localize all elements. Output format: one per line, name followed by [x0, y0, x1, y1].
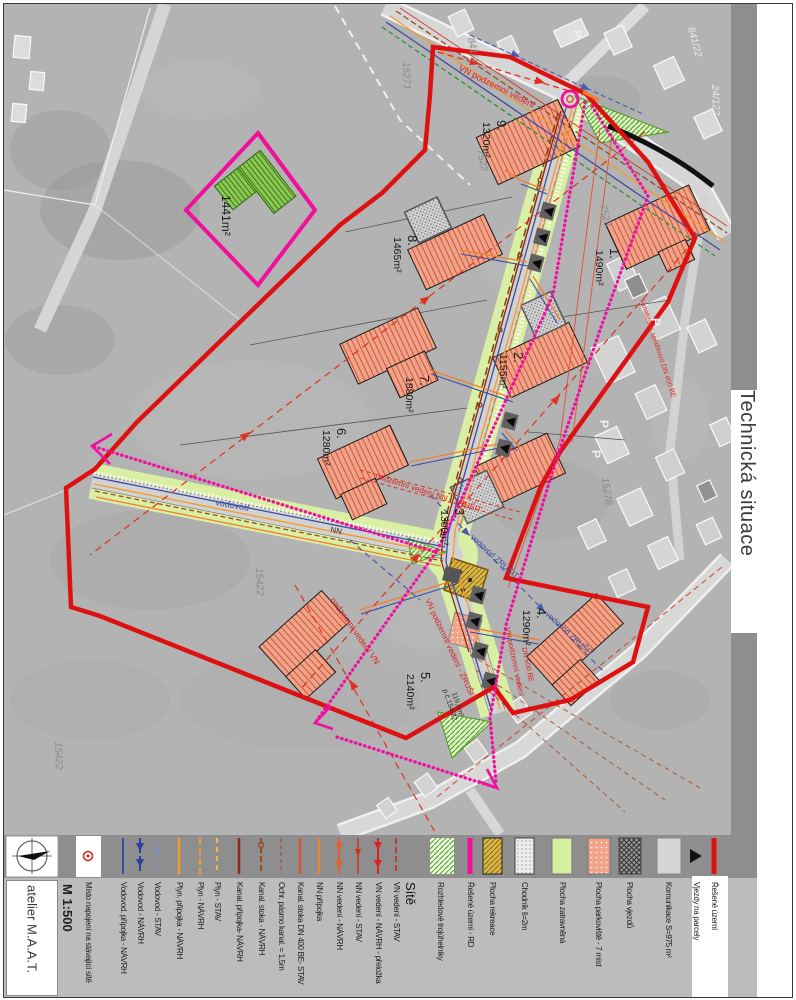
legend-label: Kanal. stoka - NÁVRH [254, 882, 268, 955]
legend-swatches [430, 838, 714, 874]
legend-symbols [4, 835, 757, 878]
parcel-1-area: 1490m² [593, 250, 605, 286]
map-canvas: 1. 1490m² 2. 1155m² 3. 1300m² 4. 1290m² … [4, 4, 731, 835]
legend-label: Ochr. pásmo kanal. = 1,5m [274, 882, 288, 970]
scale-label: M 1:500 [60, 884, 75, 932]
legend-label: VN vedení - NÁVRH - přeložka [371, 882, 385, 983]
legend-label: Plocha parkoviště - 7 míst [591, 882, 605, 966]
legend-label: Kanal. stoka DN 400 BE- STAV [293, 882, 307, 984]
parcel-5-area: 2140m² [404, 674, 416, 710]
legend-label: NN přípojka [312, 882, 326, 921]
parcel-4-area: 1290m² [520, 610, 532, 646]
cadastral-15422-b: 15422 [52, 742, 64, 771]
studio-box: atelier M.A.A.T. [6, 880, 58, 996]
connection-point-symbol [76, 836, 101, 877]
legend-label: Komunikace S=975 m² [661, 882, 675, 957]
swatch-sight-triangles [430, 838, 454, 874]
legend-label: Vodovod - NÁVRH [133, 882, 147, 944]
legend-label-misto: Místo napojení na stávající sítě [81, 882, 95, 983]
swatch-zatravnena [552, 838, 572, 874]
legend-label: Vodovod. přípojka - NÁVRH [116, 882, 130, 974]
legend-label: Rozhledové trojúhelníky [433, 882, 447, 960]
parcel-6-area: 1280m² [320, 430, 332, 466]
cadastral-15422: 15422 [253, 568, 265, 597]
parcel-2-num: 2. [511, 352, 526, 363]
parcel-3-num: 3. [452, 508, 467, 519]
cadastral-7523: 7523 [597, 203, 612, 227]
cadastral-841-22: 841/22 [685, 26, 704, 59]
swatch-komunikace [657, 838, 681, 874]
parcel-7-area: 1880m² [403, 377, 415, 413]
studio-name: atelier M.A.A.T. [25, 885, 40, 995]
cadastral-24-122: 24/122 [709, 84, 721, 116]
cadastral-15271: 15271 [400, 62, 412, 90]
p-marking-3: P [597, 420, 611, 428]
right-gray-strip-top [731, 4, 757, 390]
legend-label: Plocha rekreace [485, 882, 499, 935]
swatch-vjezdy-na-parcely-icon [690, 849, 702, 863]
page-title: Technická situace [735, 390, 758, 633]
legend-label: NN vedení - STAV [351, 882, 365, 942]
parcel-1441-area: 1441m² [219, 195, 233, 236]
parcel-6-num: 6. [334, 428, 349, 439]
legend-label: Řešené území - RD [463, 882, 477, 947]
p-marking-4: P [589, 450, 603, 458]
legend-label: Plyn - NÁVRH [193, 882, 207, 929]
swatch-vjezdy [619, 838, 641, 874]
parcel-3-area: 1300m² [438, 510, 450, 546]
legend-label: Plocha vjezdů [622, 882, 636, 928]
right-gray-strip-bottom [731, 633, 757, 835]
swatch-chodnik [515, 838, 534, 874]
north-compass-icon [6, 836, 58, 877]
p-marking-1: P [570, 30, 584, 38]
legend-section-header: Sítě [403, 882, 417, 905]
parcel-1-num: 1. [607, 248, 622, 259]
legend-label: VN vedení - STAV [389, 882, 403, 941]
parcel-8-area: 1465m² [391, 237, 403, 273]
parcel-2-area: 1155m² [497, 354, 509, 389]
parcel-8-num: 8. [405, 235, 420, 246]
parcel-9-num: 9. [494, 120, 509, 131]
legend-label: Kanal. přípojka- NÁVRH [232, 882, 246, 962]
title-box: Technická situace [731, 390, 790, 633]
p-marking-2: P [649, 318, 663, 326]
legend-label: Plocha zatravněná [555, 882, 569, 943]
legend-label: Řešené území [707, 882, 721, 930]
legend-label: Plyn. přípojka - NÁVRH [172, 882, 186, 959]
parcel-7-num: 7. [417, 375, 432, 386]
swatch-parkoviste [588, 838, 610, 874]
legend-label: Vodovod - STAV [150, 882, 164, 936]
legend-label: Vjezdy na parcely [689, 882, 703, 940]
legend-label: NN vedení - NÁVRH [332, 882, 346, 950]
legend-label: Chodník š=2m [517, 882, 531, 930]
parcel-5-num: 5. [418, 672, 433, 683]
site-plan-map: 1. 1490m² 2. 1155m² 3. 1300m² 4. 1290m² … [4, 4, 731, 835]
swatch-rekreace [483, 838, 502, 874]
legend-label: Plyn - STAV [210, 882, 224, 921]
page: { "title": "Technická situace", "studio"… [0, 0, 796, 1000]
legend-line-samples [123, 838, 396, 874]
